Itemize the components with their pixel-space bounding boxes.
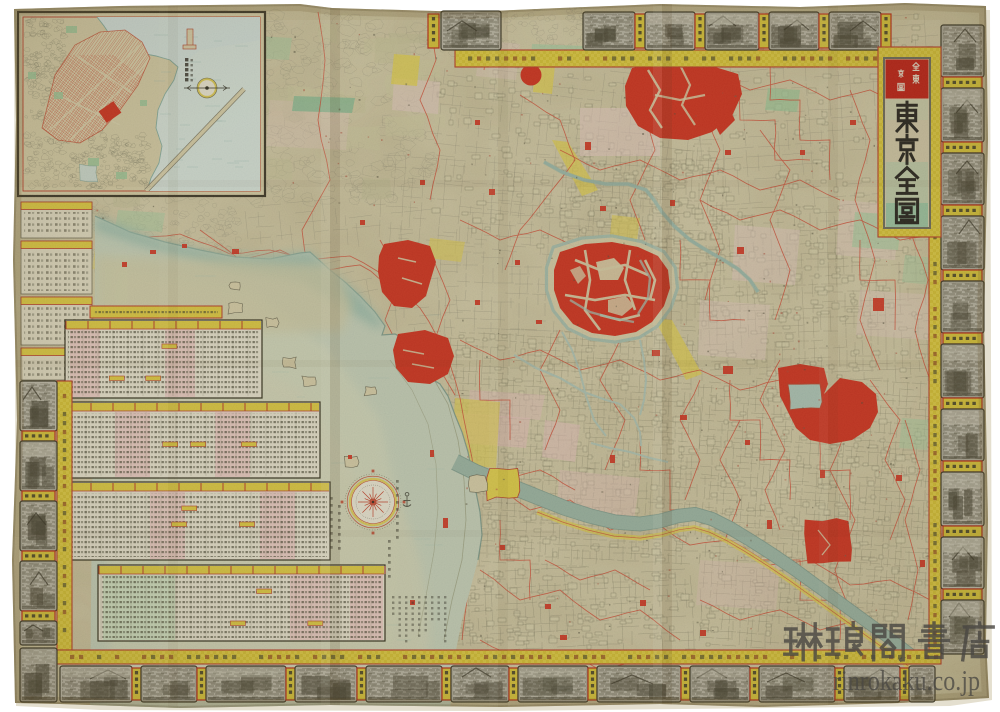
svg-text:rinrokaku.co.jp: rinrokaku.co.jp [833,665,980,697]
